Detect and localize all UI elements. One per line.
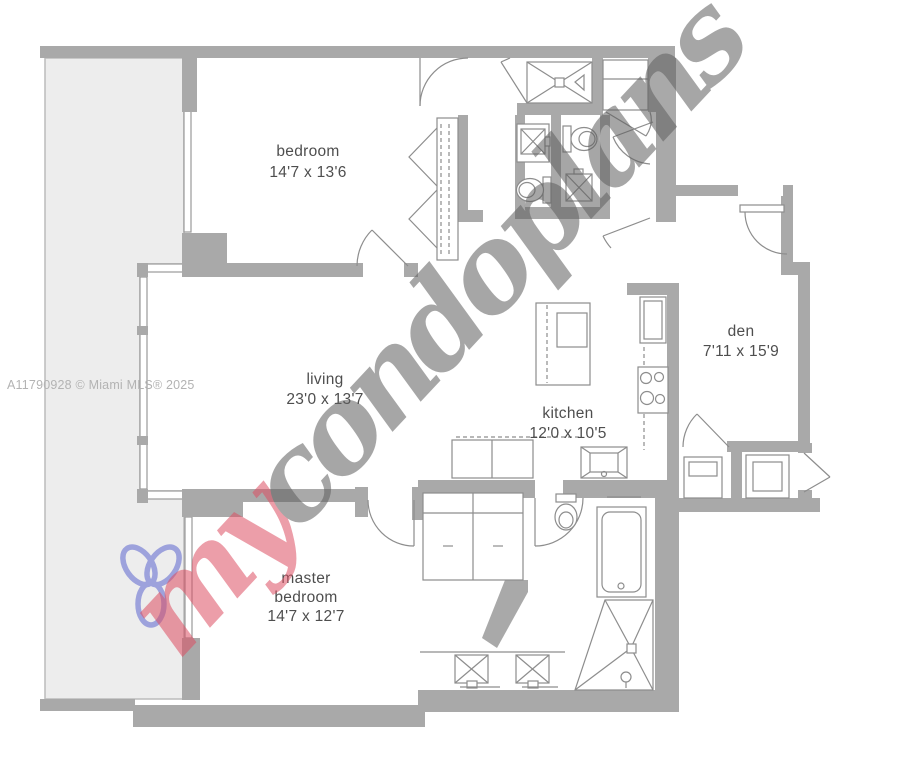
bifold-door-icon — [409, 128, 437, 186]
laundry-bifold-door — [804, 453, 830, 492]
bedroom-dims: 14'7 x 13'6 — [269, 164, 346, 181]
floorplan-page: bedroom 14'7 x 13'6 living 23'0 x 13'7 k… — [0, 0, 897, 768]
bedroom-window — [184, 110, 191, 232]
living-window-bottom — [147, 491, 183, 499]
master-toilet-icon — [555, 494, 577, 530]
den-door — [683, 414, 729, 447]
hall-door — [420, 58, 468, 106]
kitchen-dims: 12'0 x 10'5 — [529, 425, 606, 442]
stove-icon — [638, 367, 668, 413]
master-shower-icon — [575, 600, 653, 690]
bedroom-label: bedroom — [276, 143, 339, 160]
double-vanity — [420, 652, 565, 688]
washer-icon — [684, 457, 722, 498]
dryer-icon — [746, 455, 789, 498]
entry-door — [740, 205, 787, 254]
kitchen-label: kitchen — [542, 405, 593, 422]
master-corridor-closets — [423, 493, 523, 580]
den-label: den — [728, 323, 755, 340]
mls-attribution: A11790928 © Miami MLS® 2025 — [7, 378, 195, 392]
closet-angled-wall — [482, 580, 528, 648]
master-bedroom-door — [368, 500, 414, 546]
kitchen-upper-cabinet — [640, 297, 666, 343]
den-dims: 7'11 x 15'9 — [703, 343, 779, 360]
shower-pivot-door — [501, 58, 527, 103]
master-dims: 14'7 x 12'7 — [267, 608, 344, 625]
floorplan-drawing: bedroom 14'7 x 13'6 living 23'0 x 13'7 k… — [0, 0, 897, 768]
kitchen-sink-icon — [581, 447, 627, 478]
living-window-top — [147, 264, 183, 272]
master-label-line2: bedroom — [274, 589, 337, 606]
bathtub-icon — [597, 507, 646, 597]
kitchen-island — [536, 303, 590, 385]
